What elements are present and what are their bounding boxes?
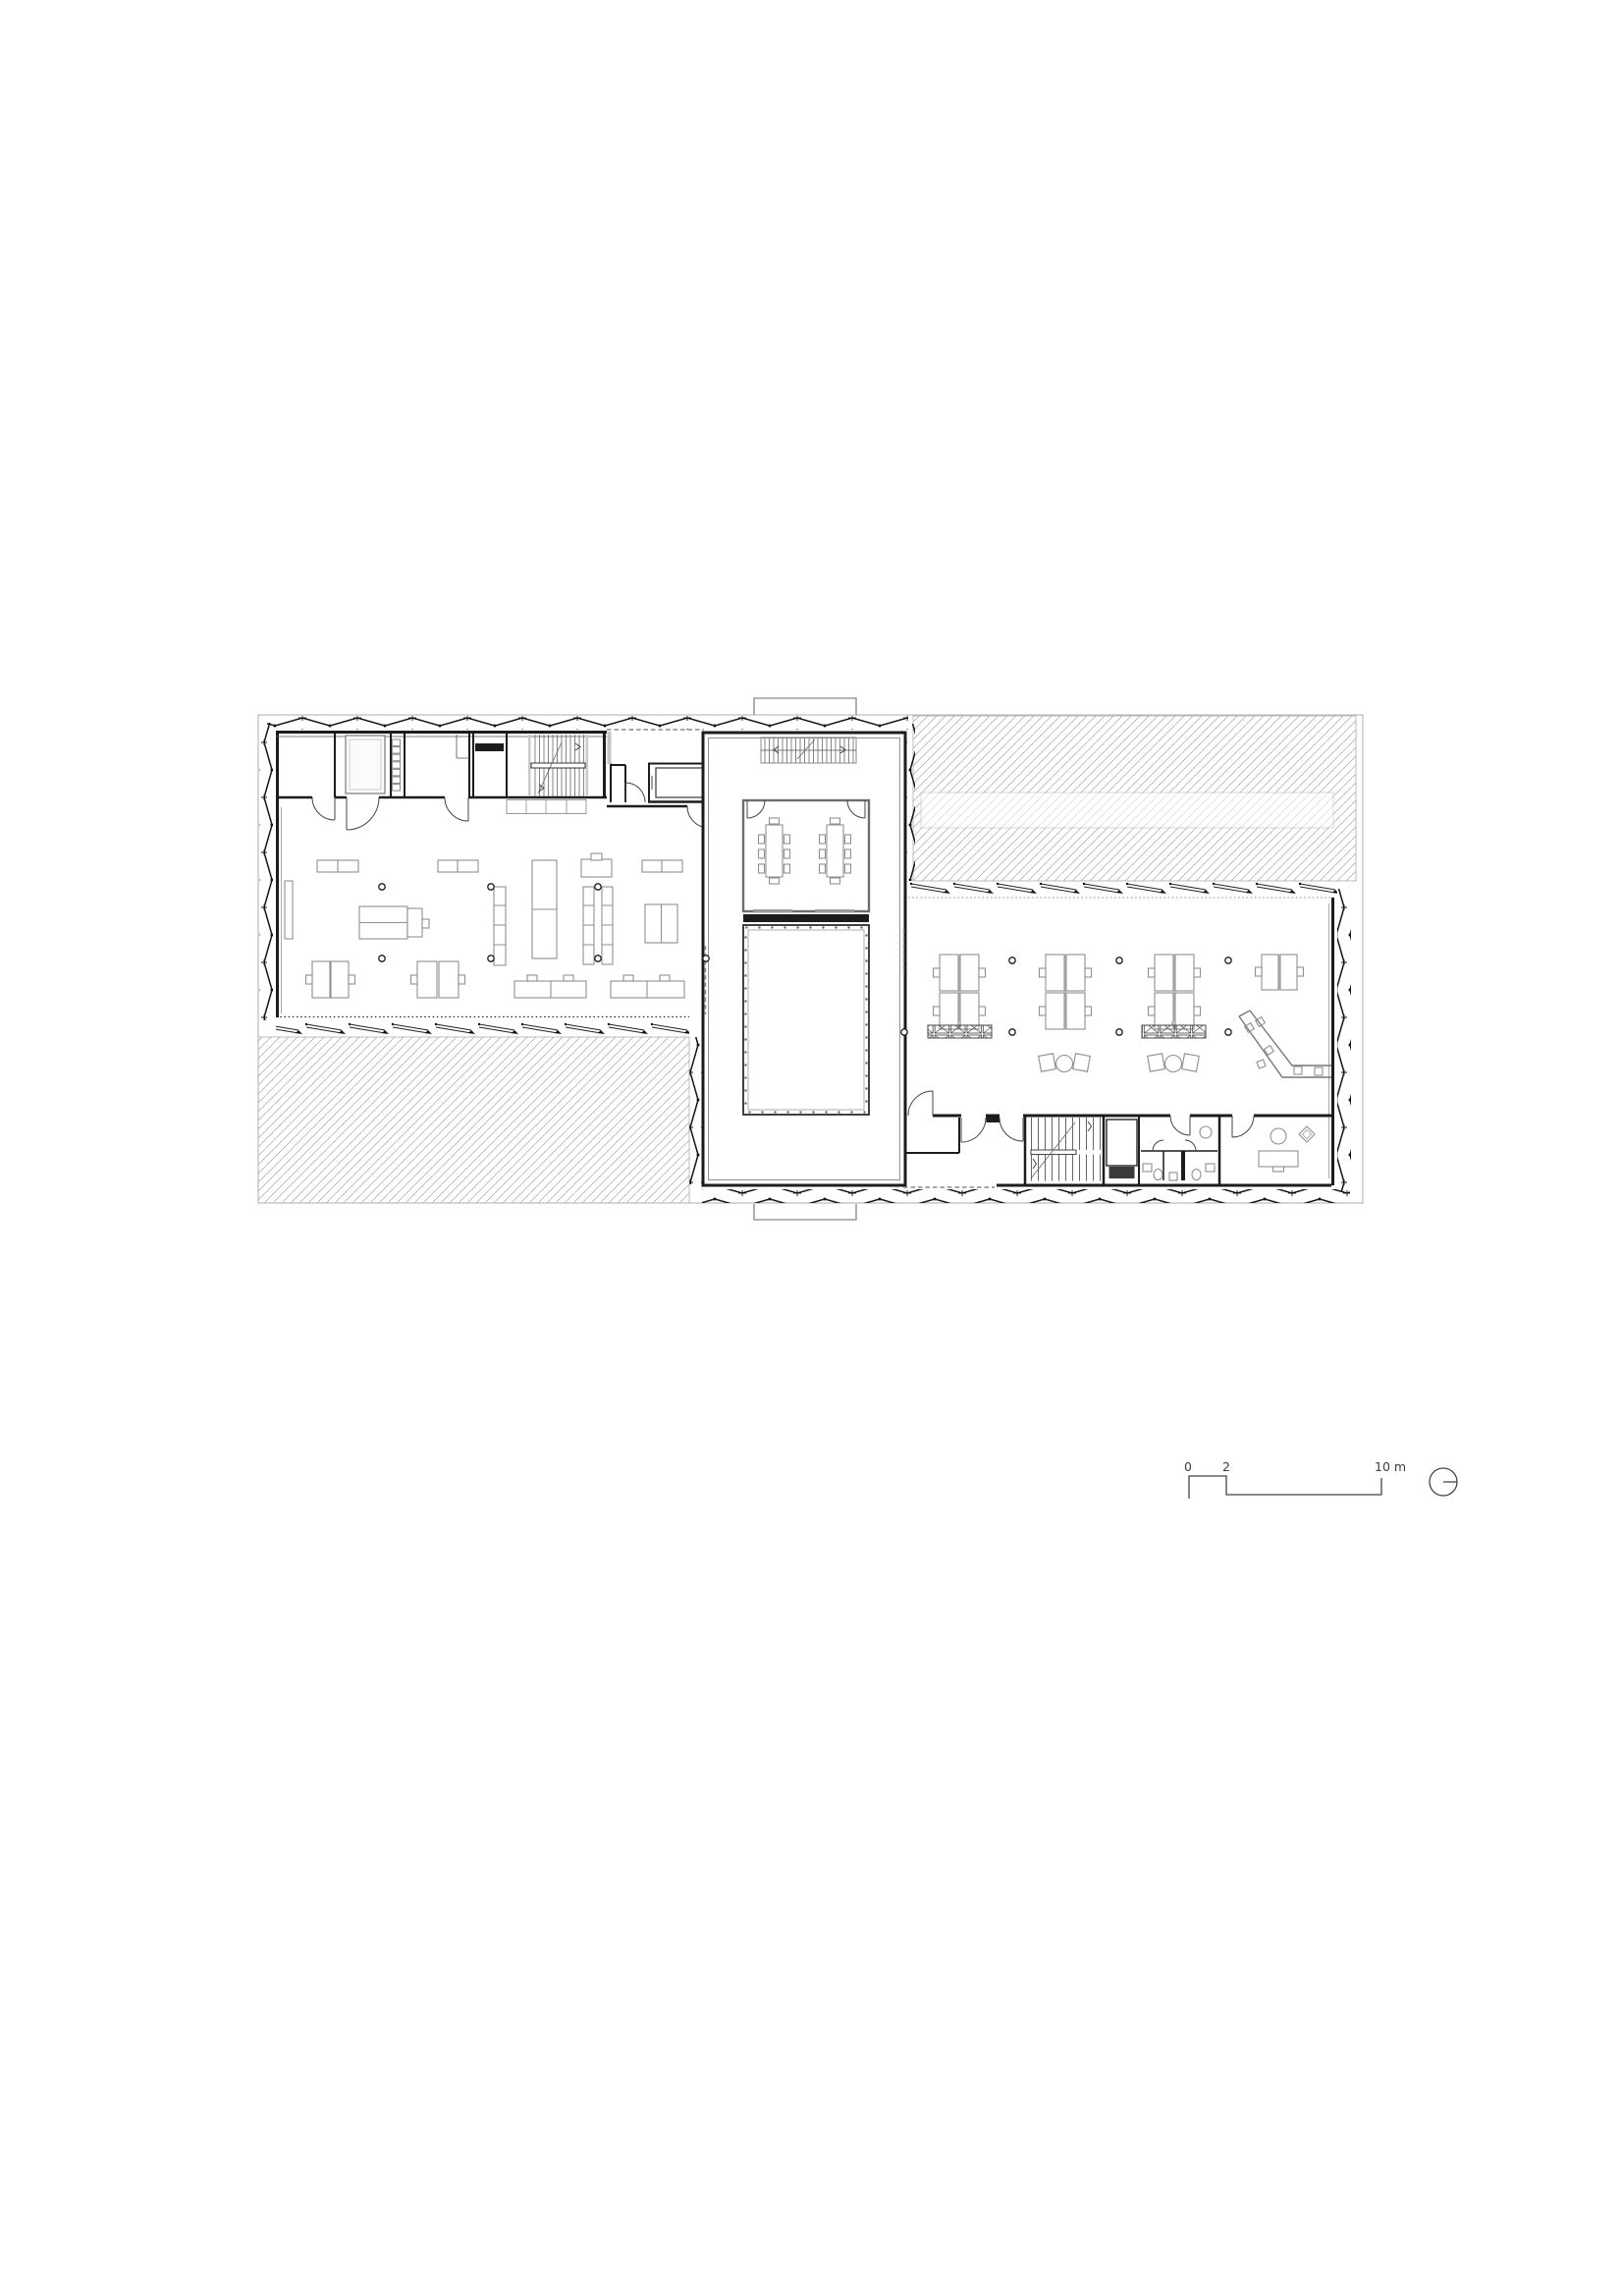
stair-east xyxy=(1027,1118,1102,1181)
column xyxy=(1116,957,1122,963)
duct-shaft-east xyxy=(1107,1120,1137,1178)
storage-shelf xyxy=(583,887,594,964)
void-opening xyxy=(743,925,869,1115)
column xyxy=(1116,1029,1122,1035)
cold-room xyxy=(346,736,385,793)
bench-row xyxy=(514,975,586,998)
canopy-south xyxy=(754,1204,856,1220)
workbench-large xyxy=(359,906,429,939)
storage-shelf xyxy=(602,887,613,964)
floor-plan-drawing: 0 2 10 m xyxy=(0,0,1622,2296)
column xyxy=(488,956,494,961)
column xyxy=(1009,1029,1015,1035)
sideboard xyxy=(815,909,854,913)
machine xyxy=(581,853,612,877)
sideboard xyxy=(753,909,792,913)
facade-zigzag-west xyxy=(259,723,273,1020)
equipment-bench xyxy=(928,1021,992,1038)
office-chair xyxy=(1273,1167,1284,1172)
fixture xyxy=(1169,1173,1177,1180)
desk-cluster xyxy=(934,955,986,1029)
meeting-room xyxy=(743,800,869,913)
toilet xyxy=(1154,1170,1162,1180)
desk-cluster xyxy=(1040,955,1092,1029)
column xyxy=(1225,957,1231,963)
column xyxy=(595,956,601,961)
equipment-bench xyxy=(1142,1021,1206,1038)
facade-zigzag-north xyxy=(267,716,908,730)
cabinet xyxy=(645,904,677,943)
column xyxy=(1225,1029,1231,1035)
shelf-column xyxy=(393,739,401,791)
canopy-north xyxy=(754,698,856,715)
stair-west xyxy=(528,735,588,796)
scale-label-2: 2 xyxy=(1222,1459,1230,1474)
worktable xyxy=(438,860,478,872)
plant xyxy=(1299,1126,1315,1142)
toilet xyxy=(1192,1170,1201,1180)
column xyxy=(901,1029,907,1035)
facade-louver-north-east-wing xyxy=(907,881,1337,894)
locker-bench xyxy=(507,800,586,814)
duct-shaft xyxy=(475,743,504,751)
storage-shelf xyxy=(494,887,506,965)
facade-zigzag-south xyxy=(702,1189,1350,1203)
desk-pair xyxy=(411,961,465,998)
desk-single xyxy=(1256,955,1304,990)
wall-fill xyxy=(608,732,612,764)
facade-zigzag-east xyxy=(1337,889,1351,1191)
north-arrow-icon xyxy=(1430,1468,1457,1496)
column xyxy=(703,956,709,961)
left-wing xyxy=(276,730,709,1017)
cistern xyxy=(1206,1164,1215,1172)
radiator xyxy=(285,881,293,939)
right-wing xyxy=(901,898,1333,1185)
stair-central xyxy=(761,738,856,763)
wc-area xyxy=(1141,1116,1217,1180)
roof-strip xyxy=(921,793,1333,828)
column xyxy=(379,884,385,890)
column xyxy=(379,956,385,961)
scale-label-10m: 10 m xyxy=(1375,1459,1406,1474)
sink xyxy=(1200,1126,1212,1138)
facade-louver-south-west-wing xyxy=(276,1022,689,1035)
bench-row xyxy=(611,975,684,998)
worktable xyxy=(317,860,358,872)
desk-pair xyxy=(306,961,355,998)
scale-label-0: 0 xyxy=(1184,1459,1192,1474)
elevator xyxy=(652,768,704,797)
reception-desk xyxy=(1239,1011,1331,1077)
cross-wall xyxy=(743,914,869,922)
floor-plan-sheet: 0 2 10 m xyxy=(0,0,1622,2296)
column xyxy=(1009,957,1015,963)
facade-zigzag-core-west xyxy=(689,1037,703,1184)
scale-bar: 0 2 10 m xyxy=(1184,1459,1406,1499)
cistern xyxy=(1143,1164,1152,1172)
column xyxy=(488,884,494,890)
round-chair xyxy=(1271,1128,1286,1144)
office-room xyxy=(1232,1116,1315,1172)
lounge-seating xyxy=(1148,1054,1200,1072)
storage-unit xyxy=(532,860,557,958)
column xyxy=(595,884,601,890)
wall-stub xyxy=(987,1116,1000,1122)
lobby-doors xyxy=(908,1091,1023,1142)
lounge-seating xyxy=(1039,1054,1091,1072)
workshop-furniture xyxy=(285,853,684,998)
worktable xyxy=(642,860,682,872)
hatch-area-north xyxy=(913,716,1356,881)
office-desk xyxy=(1259,1151,1298,1167)
desk-cluster xyxy=(1149,955,1201,1029)
hatch-area-south xyxy=(258,1037,689,1203)
